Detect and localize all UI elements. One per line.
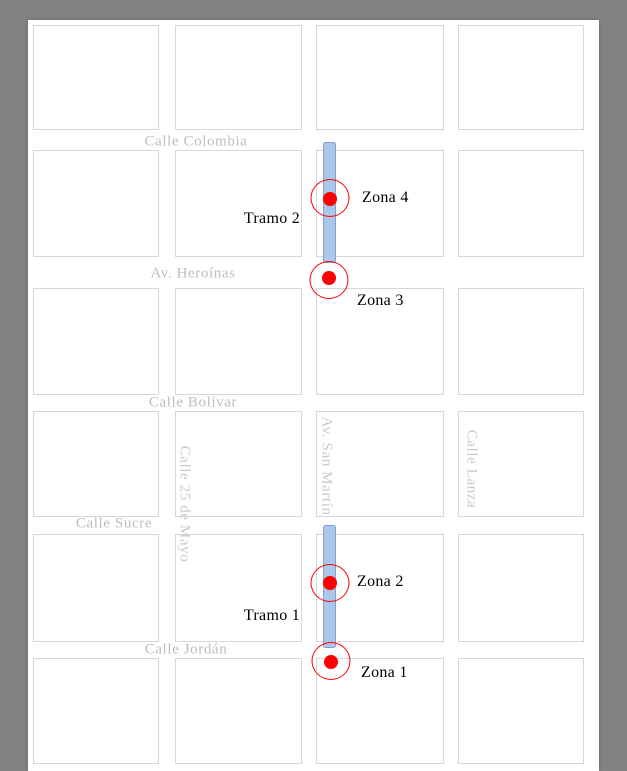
zona-2-marker-dot	[323, 576, 337, 590]
city-block	[33, 288, 159, 395]
city-block	[175, 411, 302, 517]
city-block	[316, 411, 444, 517]
city-block	[458, 150, 584, 257]
city-block	[175, 150, 302, 257]
city-block	[175, 25, 302, 130]
tramo-1-label: Tramo 1	[244, 608, 300, 624]
city-block	[316, 25, 444, 130]
street-label-calle-sucre: Calle Sucre	[76, 517, 152, 532]
city-block	[175, 658, 302, 764]
street-label-av-san-martin: Av. San Martín	[319, 416, 334, 515]
city-block	[458, 658, 584, 764]
zona-2-label: Zona 2	[357, 574, 404, 590]
city-block	[33, 25, 159, 130]
city-block	[458, 288, 584, 395]
city-block	[33, 150, 159, 257]
zona-4-label: Zona 4	[362, 190, 409, 206]
city-block	[175, 288, 302, 395]
zona-3-label: Zona 3	[357, 293, 404, 309]
map-figure: Calle Colombia Av. Heroínas Calle Bolíva…	[0, 0, 627, 771]
city-block	[33, 534, 159, 642]
zona-3-marker-dot	[322, 271, 336, 285]
street-label-calle-jordan: Calle Jordán	[145, 643, 228, 658]
tramo-2-label: Tramo 2	[244, 211, 300, 227]
city-block	[33, 658, 159, 764]
street-label-calle-lanza: Calle Lanza	[464, 430, 479, 509]
street-label-calle-colombia: Calle Colombia	[145, 135, 248, 150]
zona-4-marker-dot	[323, 192, 337, 206]
zona-1-label: Zona 1	[361, 665, 408, 681]
city-block	[458, 534, 584, 642]
street-label-calle-25-de-mayo: Calle 25 de Mayo	[177, 446, 192, 563]
street-label-calle-bolivar: Calle Bolívar	[149, 396, 237, 411]
city-block	[458, 25, 584, 130]
city-block	[175, 534, 302, 642]
zona-1-marker-dot	[324, 655, 338, 669]
street-label-av-heroinas: Av. Heroínas	[150, 267, 235, 282]
city-block	[33, 411, 159, 517]
